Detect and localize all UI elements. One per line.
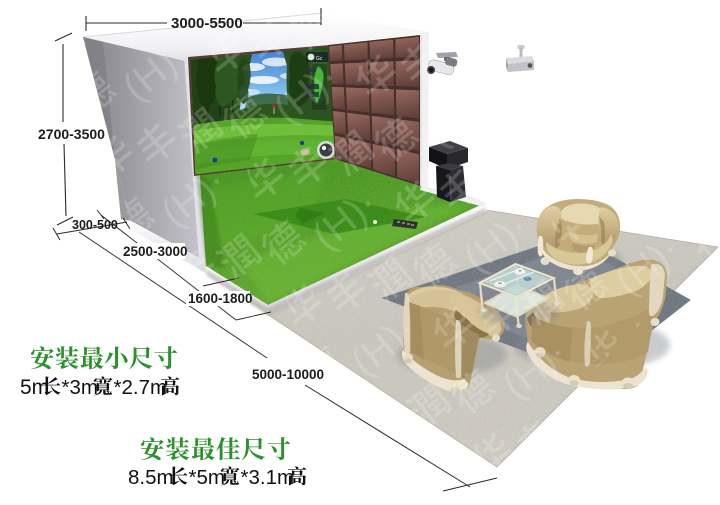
svg-text:*3m: *3m	[62, 376, 98, 399]
svg-text:300-500: 300-500	[72, 218, 118, 232]
svg-text:8.5m: 8.5m	[128, 466, 174, 489]
svg-text:2700-3500: 2700-3500	[38, 126, 105, 142]
svg-text:5m: 5m	[20, 376, 49, 399]
svg-text:*3.1m: *3.1m	[241, 466, 295, 489]
svg-text:*5m: *5m	[189, 466, 225, 489]
svg-text:5000-10000: 5000-10000	[252, 367, 324, 382]
svg-text:*2.7m: *2.7m	[114, 376, 168, 399]
